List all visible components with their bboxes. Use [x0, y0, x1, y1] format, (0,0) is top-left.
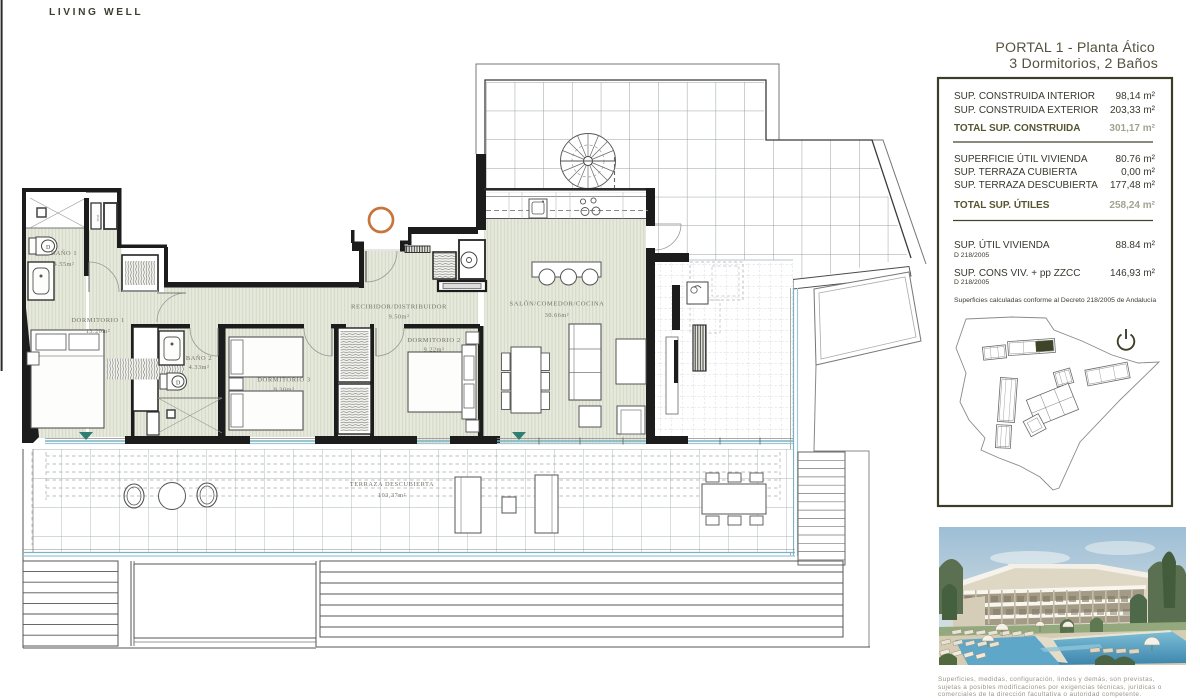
- svg-text:TERRAZA DESCUBIERTA: TERRAZA DESCUBIERTA: [350, 481, 434, 488]
- svg-text:SUP. CONSTRUIDA INTERIOR: SUP. CONSTRUIDA INTERIOR: [954, 91, 1095, 102]
- svg-text:203,33 m²: 203,33 m²: [1110, 105, 1156, 116]
- svg-text:9.30m²: 9.30m²: [274, 387, 295, 394]
- svg-text:D: D: [176, 381, 181, 387]
- svg-text:PORTAL 1 - Planta Ático: PORTAL 1 - Planta Ático: [995, 39, 1155, 56]
- svg-text:DORMITORIO 1: DORMITORIO 1: [71, 317, 125, 324]
- svg-text:80.76 m²: 80.76 m²: [1116, 154, 1156, 165]
- svg-text:301,17 m²: 301,17 m²: [1109, 123, 1155, 134]
- svg-text:SALÓN/COMEDOR/COCINA: SALÓN/COMEDOR/COCINA: [510, 300, 605, 308]
- svg-text:98,14 m²: 98,14 m²: [1116, 91, 1156, 102]
- svg-text:comerciales de la dirección fa: comerciales de la dirección facultativa …: [938, 691, 1142, 698]
- svg-text:sujetas a posibles modificacio: sujetas a posibles modificaciones por ex…: [938, 684, 1162, 691]
- svg-text:103,37m²: 103,37m²: [378, 492, 406, 499]
- svg-text:SUP. CONSTRUIDA EXTERIOR: SUP. CONSTRUIDA EXTERIOR: [954, 105, 1098, 116]
- svg-text:text: text: [95, 214, 100, 221]
- svg-text:SUPERFICIE ÚTIL VIVIENDA: SUPERFICIE ÚTIL VIVIENDA: [954, 152, 1088, 165]
- svg-text:SUP. TERRAZA CUBIERTA: SUP. TERRAZA CUBIERTA: [954, 167, 1078, 178]
- svg-text:30.66m²: 30.66m²: [545, 312, 569, 319]
- svg-text:9.50m²: 9.50m²: [389, 314, 410, 321]
- svg-text:4.33m²: 4.33m²: [189, 364, 210, 371]
- svg-text:3 Dormitorios, 2 Baños: 3 Dormitorios, 2 Baños: [1009, 56, 1158, 72]
- svg-text:177,48 m²: 177,48 m²: [1110, 180, 1156, 191]
- svg-text:BAÑO 1: BAÑO 1: [51, 249, 77, 257]
- svg-text:RECIBIDOR/DISTRIBUIDOR: RECIBIDOR/DISTRIBUIDOR: [351, 304, 447, 311]
- svg-text:4.55m²: 4.55m²: [54, 261, 75, 268]
- svg-text:SUP. CONS VIV. + pp ZZCC: SUP. CONS VIV. + pp ZZCC: [954, 268, 1080, 279]
- svg-text:88.84 m²: 88.84 m²: [1116, 240, 1156, 251]
- svg-text:SUP. ÚTIL VIVIENDA: SUP. ÚTIL VIVIENDA: [954, 238, 1050, 251]
- svg-text:TOTAL SUP. ÚTILES: TOTAL SUP. ÚTILES: [954, 198, 1050, 211]
- svg-text:Superficies calculadas conform: Superficies calculadas conforme al Decre…: [954, 297, 1156, 304]
- svg-text:Superficies, medidas, configur: Superficies, medidas, configuración, lin…: [938, 676, 1155, 683]
- svg-text:13.20m²: 13.20m²: [86, 328, 110, 335]
- svg-text:DORMITORIO 3: DORMITORIO 3: [257, 377, 311, 384]
- svg-text:BAÑO 2: BAÑO 2: [186, 354, 212, 362]
- svg-text:SUP. TERRAZA DESCUBIERTA: SUP. TERRAZA DESCUBIERTA: [954, 180, 1098, 191]
- svg-text:258,24 m²: 258,24 m²: [1109, 200, 1155, 211]
- svg-text:D 218/2005: D 218/2005: [954, 279, 989, 286]
- svg-text:D 218/2005: D 218/2005: [954, 252, 989, 259]
- svg-text:146,93 m²: 146,93 m²: [1110, 268, 1156, 279]
- svg-text:TOTAL SUP. CONSTRUIDA: TOTAL SUP. CONSTRUIDA: [954, 123, 1081, 134]
- svg-text:DORMITORIO 2: DORMITORIO 2: [407, 337, 461, 344]
- svg-text:0,00 m²: 0,00 m²: [1121, 167, 1156, 178]
- svg-text:LIVING WELL: LIVING WELL: [49, 7, 143, 18]
